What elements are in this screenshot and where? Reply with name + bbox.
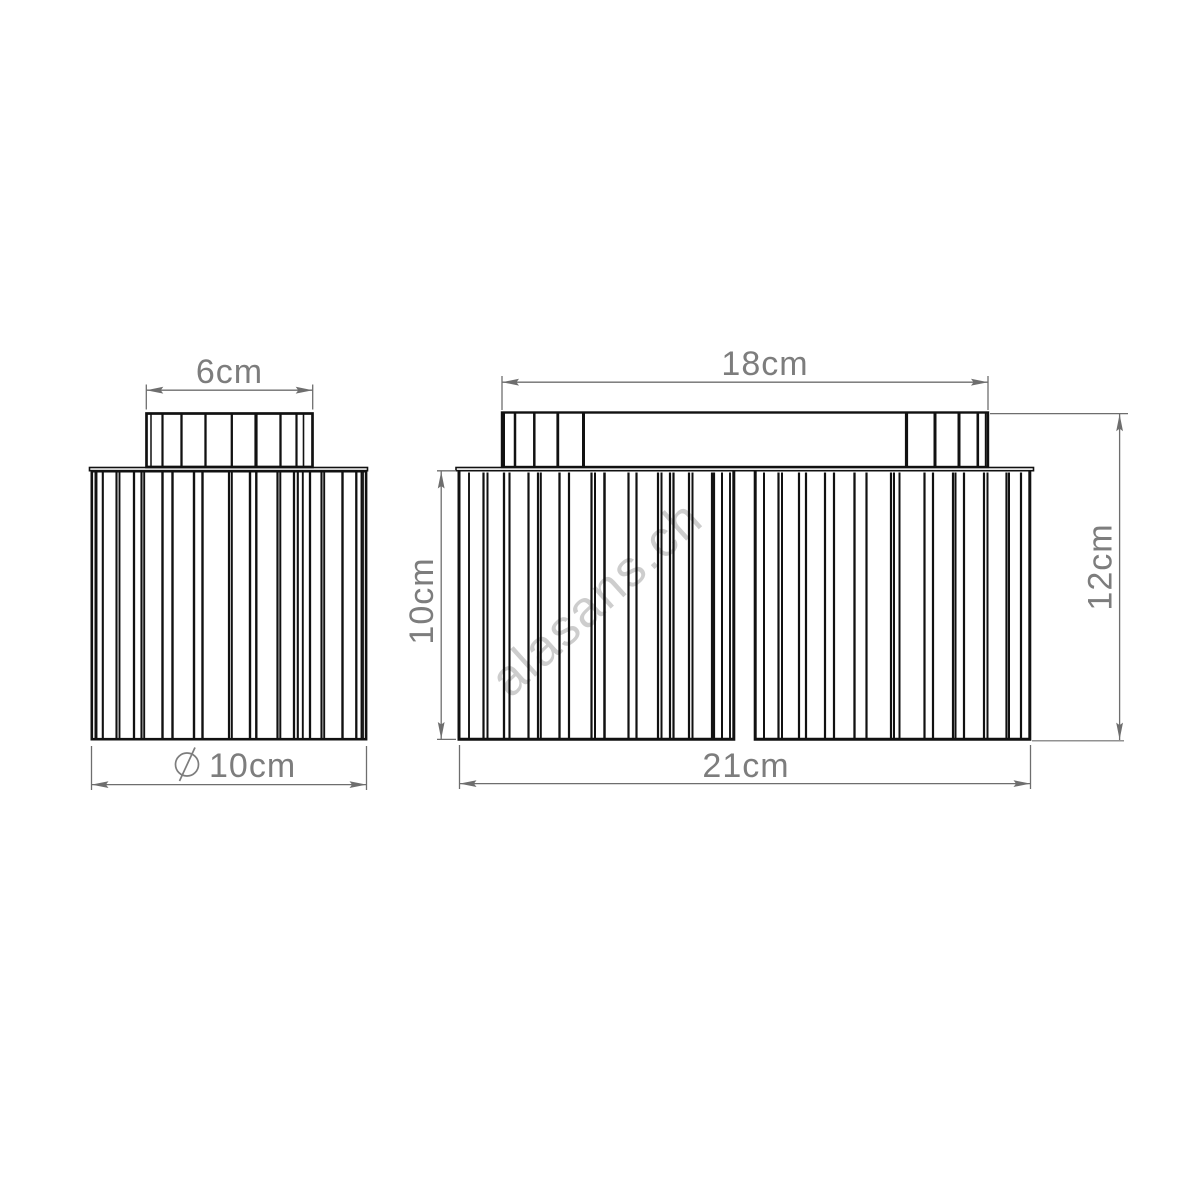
svg-text:18cm: 18cm (721, 345, 808, 383)
svg-text:12cm: 12cm (1082, 523, 1120, 610)
svg-text:6cm: 6cm (196, 353, 263, 391)
svg-text:21cm: 21cm (702, 747, 789, 785)
svg-text:10cm: 10cm (403, 557, 441, 644)
svg-text:10cm: 10cm (209, 747, 296, 785)
